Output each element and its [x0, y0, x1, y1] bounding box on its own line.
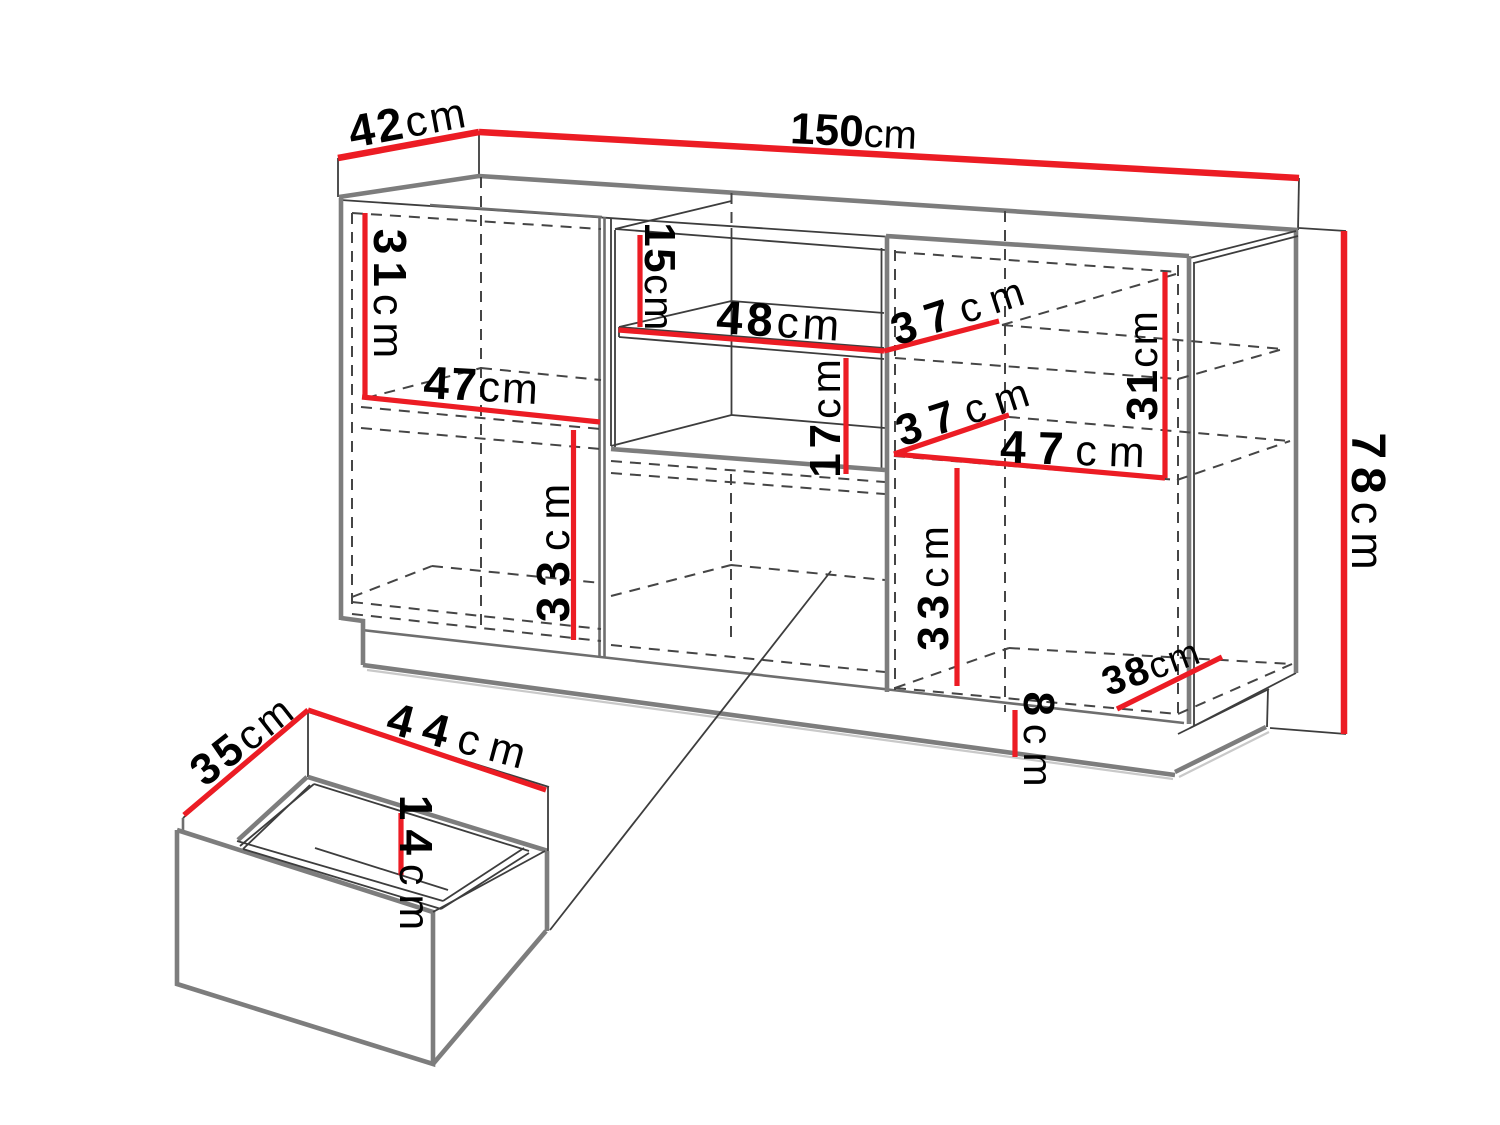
svg-text:15cm: 15cm: [635, 222, 684, 332]
svg-text:33cm: 33cm: [909, 519, 958, 651]
svg-text:8cm: 8cm: [1014, 691, 1063, 794]
svg-text:150cm: 150cm: [789, 104, 918, 159]
svg-text:31cm: 31cm: [1118, 309, 1167, 421]
svg-text:47cm: 47cm: [422, 356, 541, 414]
svg-text:47cm: 47cm: [999, 420, 1157, 477]
svg-text:14cm: 14cm: [390, 795, 442, 940]
svg-text:33cm: 33cm: [527, 474, 579, 623]
svg-text:17cm: 17cm: [801, 354, 850, 478]
svg-text:78cm: 78cm: [1341, 432, 1394, 577]
svg-text:31cm: 31cm: [364, 229, 416, 366]
